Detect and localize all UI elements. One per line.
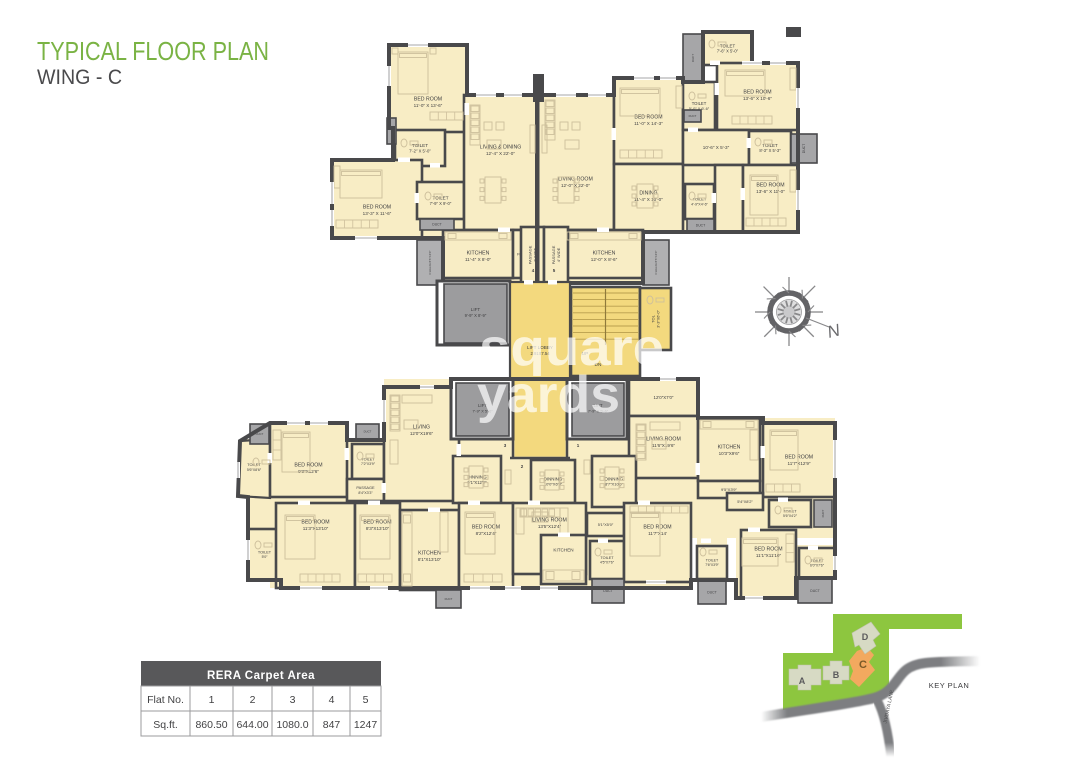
svg-text:12′0″X7′0″: 12′0″X7′0″ <box>654 395 674 400</box>
svg-text:TOILET: TOILET <box>783 509 797 513</box>
svg-text:847: 847 <box>323 719 341 731</box>
svg-text:C: C <box>859 659 867 671</box>
svg-text:BED ROOM: BED ROOM <box>785 455 813 461</box>
svg-text:LIVING ROOM: LIVING ROOM <box>558 177 593 183</box>
svg-text:TOILET: TOILET <box>600 556 614 560</box>
svg-text:12′-4″ X 22′-0″: 12′-4″ X 22′-0″ <box>486 151 515 156</box>
svg-text:9′5″X3′9″: 9′5″X3′9″ <box>721 487 737 492</box>
svg-text:D: D <box>862 632 869 642</box>
svg-text:1247: 1247 <box>354 719 378 731</box>
svg-text:WING - C: WING - C <box>37 66 122 89</box>
svg-text:TOILET: TOILET <box>258 550 272 554</box>
svg-text:TOILET: TOILET <box>706 558 719 562</box>
svg-text:9′-9″ X 8′-9″: 9′-9″ X 8′-9″ <box>465 313 487 318</box>
svg-text:DUCT: DUCT <box>364 430 372 434</box>
svg-text:RERA Carpet Area: RERA Carpet Area <box>207 670 315 682</box>
svg-text:5′4″X8′2″: 5′4″X8′2″ <box>737 499 753 504</box>
svg-text:LIVING: LIVING <box>413 425 430 431</box>
svg-text:Sq.ft.: Sq.ft. <box>153 719 178 731</box>
svg-text:DUCT: DUCT <box>821 509 825 517</box>
svg-text:4′-9″X4′-6″: 4′-9″X4′-6″ <box>691 202 708 206</box>
svg-text:11′7″X14′: 11′7″X14′ <box>648 531 667 536</box>
svg-text:7′6″X3′9″: 7′6″X3′9″ <box>705 563 719 567</box>
svg-text:DUCT: DUCT <box>707 591 716 595</box>
svg-text:5′0″: 5′0″ <box>262 555 269 559</box>
svg-text:5′6″X4′2″: 5′6″X4′2″ <box>783 514 798 518</box>
svg-text:13′-6″ X 11′-0″: 13′-6″ X 11′-0″ <box>756 189 785 194</box>
svg-text:KITCHEN: KITCHEN <box>418 551 441 557</box>
svg-text:3: 3 <box>290 694 296 706</box>
svg-text:DUCT: DUCT <box>689 114 697 118</box>
svg-text:BED ROOM: BED ROOM <box>643 525 671 531</box>
svg-text:11′7″X12′9″: 11′7″X12′9″ <box>787 461 810 466</box>
svg-text:DUCT: DUCT <box>802 144 806 153</box>
svg-text:11′-4″ X 10′-0″: 11′-4″ X 10′-0″ <box>634 197 663 202</box>
svg-text:9′3″X12′6″: 9′3″X12′6″ <box>298 469 319 474</box>
svg-text:11′-4″ X 8′-0″: 11′-4″ X 8′-0″ <box>465 257 491 262</box>
svg-text:BED ROOM: BED ROOM <box>756 183 784 189</box>
svg-text:Flat No.: Flat No. <box>147 694 184 706</box>
svg-text:11′3″X13′10″: 11′3″X13′10″ <box>303 526 329 531</box>
svg-text:BED ROOM: BED ROOM <box>414 97 442 103</box>
svg-text:DUCT: DUCT <box>696 224 705 228</box>
svg-text:8′1″X13′10″: 8′1″X13′10″ <box>418 557 442 562</box>
svg-text:13′5″X12′4″: 13′5″X12′4″ <box>538 524 562 529</box>
svg-text:BED ROOM: BED ROOM <box>294 463 322 469</box>
svg-text:KITCHEN: KITCHEN <box>593 251 616 257</box>
svg-text:4′ WIDE: 4′ WIDE <box>556 247 561 262</box>
svg-text:8′3″X13′10″: 8′3″X13′10″ <box>366 526 390 531</box>
svg-text:DUCT: DUCT <box>445 597 453 601</box>
svg-text:7′2″X3′9″: 7′2″X3′9″ <box>361 462 376 466</box>
svg-text:7′-2″ X 5′-0″: 7′-2″ X 5′-0″ <box>409 148 431 153</box>
svg-text:PASSAGE: PASSAGE <box>356 485 375 490</box>
svg-text:7′-6″ X 5′-0″: 7′-6″ X 5′-0″ <box>717 49 739 54</box>
svg-text:DUCT: DUCT <box>432 223 441 227</box>
svg-text:10′3″X9′6″: 10′3″X9′6″ <box>719 451 740 456</box>
svg-text:BED ROOM: BED ROOM <box>472 525 500 531</box>
svg-text:13′-3″ X 11′-6″: 13′-3″ X 11′-6″ <box>363 211 392 216</box>
svg-text:LIVING ROOM: LIVING ROOM <box>532 518 567 524</box>
svg-text:KEY PLAN: KEY PLAN <box>929 681 970 690</box>
svg-text:DUCT: DUCT <box>810 589 819 593</box>
svg-text:4: 4 <box>329 694 335 706</box>
svg-text:7′-9″ X 9′-0″: 7′-9″ X 9′-0″ <box>430 201 452 206</box>
svg-text:11′-0″ X 14′-3″: 11′-0″ X 14′-3″ <box>634 121 663 126</box>
svg-text:1080.0: 1080.0 <box>276 719 308 731</box>
svg-text:BED ROOM: BED ROOM <box>743 90 771 96</box>
svg-text:8′7″X10′6″: 8′7″X10′6″ <box>605 482 624 487</box>
svg-text:KITCHEN: KITCHEN <box>553 548 573 553</box>
svg-text:11′-0″ X 13′-6″: 11′-0″ X 13′-6″ <box>414 103 443 108</box>
svg-text:11′6″X19′6″: 11′6″X19′6″ <box>652 443 675 448</box>
svg-text:8′2″X12′4″: 8′2″X12′4″ <box>476 531 497 536</box>
svg-text:12′-0″ X 8′-6″: 12′-0″ X 8′-6″ <box>591 257 618 262</box>
svg-text:CHAJJA 8′6″X4′0″: CHAJJA 8′6″X4′0″ <box>654 251 658 275</box>
svg-text:4′5″X7′6″: 4′5″X7′6″ <box>600 561 615 565</box>
svg-text:860.50: 860.50 <box>195 719 227 731</box>
svg-text:5′6″X8′6″: 5′6″X8′6″ <box>247 468 262 472</box>
svg-text:KITCHEN: KITCHEN <box>718 445 741 451</box>
svg-text:1: 1 <box>209 694 215 706</box>
svg-text:2: 2 <box>250 694 256 706</box>
svg-text:8′4″X3′3″: 8′4″X3′3″ <box>358 491 373 495</box>
svg-text:BED ROOM: BED ROOM <box>363 205 391 211</box>
svg-text:LIFT: LIFT <box>471 307 481 312</box>
svg-text:6′0″X7′6″: 6′0″X7′6″ <box>810 564 825 568</box>
svg-text:LIVING & DINING: LIVING & DINING <box>480 145 522 151</box>
svg-text:yards: yards <box>477 366 620 424</box>
svg-text:KITCHEN: KITCHEN <box>467 251 490 257</box>
svg-text:12′-0″ X 22′-0″: 12′-0″ X 22′-0″ <box>561 183 590 188</box>
svg-text:5′1″X5′0″: 5′1″X5′0″ <box>598 522 614 527</box>
svg-text:CHAJJA 8′6″X4′0″: CHAJJA 8′6″X4′0″ <box>428 251 432 275</box>
svg-text:DUCT: DUCT <box>691 54 695 62</box>
svg-text:TYPICAL FLOOR PLAN: TYPICAL FLOOR PLAN <box>37 36 269 66</box>
svg-text:5: 5 <box>363 694 369 706</box>
svg-text:10′-6″ X 5′-3″: 10′-6″ X 5′-3″ <box>703 145 730 150</box>
svg-text:A: A <box>799 676 806 686</box>
svg-text:12′0″X19′6″: 12′0″X19′6″ <box>410 431 434 436</box>
svg-text:644.00: 644.00 <box>236 719 268 731</box>
svg-text:B: B <box>833 670 840 680</box>
svg-text:13′-6″ X 10′-6″: 13′-6″ X 10′-6″ <box>743 96 772 101</box>
svg-text:8′-3″ X 5′-3″: 8′-3″ X 5′-3″ <box>759 148 781 153</box>
